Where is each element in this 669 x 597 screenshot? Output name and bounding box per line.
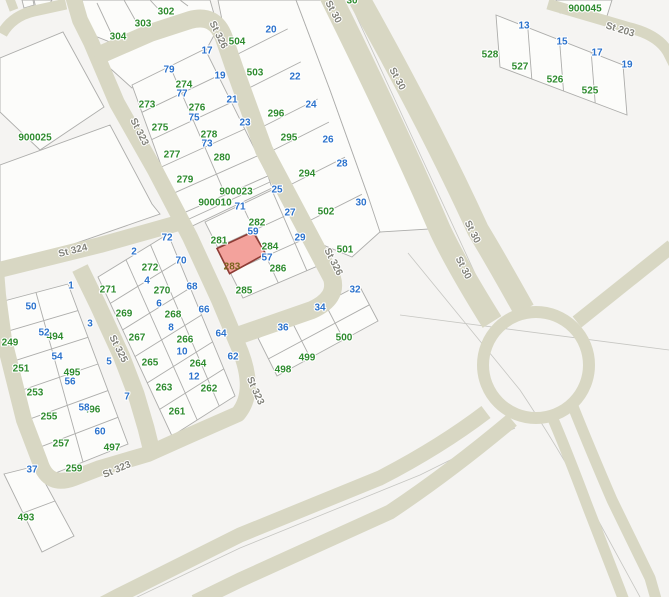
svg-text:498: 498 <box>275 365 292 376</box>
svg-text:36: 36 <box>277 323 289 334</box>
svg-text:251: 251 <box>13 364 30 375</box>
svg-text:22: 22 <box>289 72 301 83</box>
svg-text:19: 19 <box>621 60 633 71</box>
svg-text:15: 15 <box>556 37 568 48</box>
svg-text:900023: 900023 <box>219 187 253 198</box>
svg-text:296: 296 <box>268 109 285 120</box>
svg-text:7: 7 <box>124 392 130 403</box>
svg-text:58: 58 <box>78 403 90 414</box>
svg-text:275: 275 <box>152 123 169 134</box>
svg-text:263: 263 <box>156 383 173 394</box>
svg-text:12: 12 <box>188 372 200 383</box>
svg-text:266: 266 <box>177 335 194 346</box>
svg-text:285: 285 <box>236 286 253 297</box>
svg-text:269: 269 <box>116 309 133 320</box>
svg-text:20: 20 <box>265 25 277 36</box>
svg-text:501: 501 <box>337 245 354 256</box>
svg-text:25: 25 <box>271 185 283 196</box>
svg-text:272: 272 <box>142 263 159 274</box>
svg-text:281: 281 <box>211 236 228 247</box>
svg-text:304: 304 <box>110 32 127 43</box>
svg-text:255: 255 <box>41 412 58 423</box>
svg-text:499: 499 <box>299 353 316 364</box>
svg-text:17: 17 <box>201 46 213 57</box>
svg-text:6: 6 <box>156 299 162 310</box>
svg-text:60: 60 <box>94 427 106 438</box>
svg-text:273: 273 <box>139 100 156 111</box>
svg-text:62: 62 <box>227 352 239 363</box>
svg-text:5: 5 <box>106 357 112 368</box>
svg-text:30: 30 <box>355 198 367 209</box>
svg-text:56: 56 <box>64 377 76 388</box>
svg-text:525: 525 <box>582 86 599 97</box>
svg-text:249: 249 <box>2 338 19 349</box>
svg-text:265: 265 <box>142 358 159 369</box>
svg-text:28: 28 <box>336 159 348 170</box>
svg-text:270: 270 <box>154 286 171 297</box>
svg-text:2: 2 <box>131 247 137 258</box>
svg-text:3: 3 <box>87 319 93 330</box>
svg-text:77: 77 <box>176 89 188 100</box>
svg-text:526: 526 <box>547 75 564 86</box>
svg-text:54: 54 <box>51 352 63 363</box>
svg-text:75: 75 <box>188 113 200 124</box>
svg-text:261: 261 <box>169 407 186 418</box>
svg-text:68: 68 <box>186 282 198 293</box>
svg-text:30: 30 <box>346 0 358 7</box>
svg-text:19: 19 <box>214 71 226 82</box>
svg-text:259: 259 <box>66 464 83 475</box>
svg-text:502: 502 <box>318 207 335 218</box>
svg-text:79: 79 <box>163 65 175 76</box>
svg-text:26: 26 <box>322 135 334 146</box>
svg-text:64: 64 <box>215 329 227 340</box>
svg-text:900025: 900025 <box>18 133 52 144</box>
svg-text:52: 52 <box>38 328 50 339</box>
svg-text:528: 528 <box>482 50 499 61</box>
svg-text:50: 50 <box>25 302 37 313</box>
svg-text:493: 493 <box>18 513 35 524</box>
svg-text:277: 277 <box>164 150 181 161</box>
svg-text:253: 253 <box>27 388 44 399</box>
svg-text:13: 13 <box>518 21 530 32</box>
svg-text:34: 34 <box>314 303 326 314</box>
svg-text:29: 29 <box>294 233 306 244</box>
svg-text:280: 280 <box>214 153 231 164</box>
svg-text:271: 271 <box>100 285 117 296</box>
svg-text:527: 527 <box>512 62 529 73</box>
svg-text:32: 32 <box>349 285 361 296</box>
svg-text:500: 500 <box>336 333 353 344</box>
svg-text:257: 257 <box>53 439 70 450</box>
svg-text:4: 4 <box>144 276 150 287</box>
svg-text:900010: 900010 <box>198 198 232 209</box>
svg-text:10: 10 <box>176 347 188 358</box>
svg-text:27: 27 <box>284 208 296 219</box>
svg-text:900045: 900045 <box>568 4 602 15</box>
svg-text:262: 262 <box>201 384 218 395</box>
svg-text:504: 504 <box>229 37 246 48</box>
svg-text:37: 37 <box>26 465 38 476</box>
svg-text:72: 72 <box>161 233 173 244</box>
svg-text:57: 57 <box>261 253 273 264</box>
svg-text:73: 73 <box>201 139 213 150</box>
svg-text:283: 283 <box>224 262 241 273</box>
svg-text:23: 23 <box>239 118 251 129</box>
svg-text:267: 267 <box>129 333 146 344</box>
svg-text:286: 286 <box>270 264 287 275</box>
svg-text:295: 295 <box>281 133 298 144</box>
svg-text:59: 59 <box>247 227 259 238</box>
svg-text:21: 21 <box>226 95 238 106</box>
svg-text:268: 268 <box>165 310 182 321</box>
svg-text:70: 70 <box>175 256 187 267</box>
svg-text:279: 279 <box>177 175 194 186</box>
svg-text:17: 17 <box>591 48 603 59</box>
svg-text:66: 66 <box>198 305 210 316</box>
svg-text:302: 302 <box>158 7 175 18</box>
svg-text:24: 24 <box>305 100 317 111</box>
svg-text:1: 1 <box>68 281 74 292</box>
svg-text:497: 497 <box>104 443 121 454</box>
svg-text:303: 303 <box>135 19 152 30</box>
svg-text:503: 503 <box>247 68 264 79</box>
svg-text:264: 264 <box>190 359 207 370</box>
svg-text:71: 71 <box>234 202 246 213</box>
svg-text:284: 284 <box>262 242 279 253</box>
svg-text:294: 294 <box>299 169 316 180</box>
svg-text:8: 8 <box>168 323 174 334</box>
